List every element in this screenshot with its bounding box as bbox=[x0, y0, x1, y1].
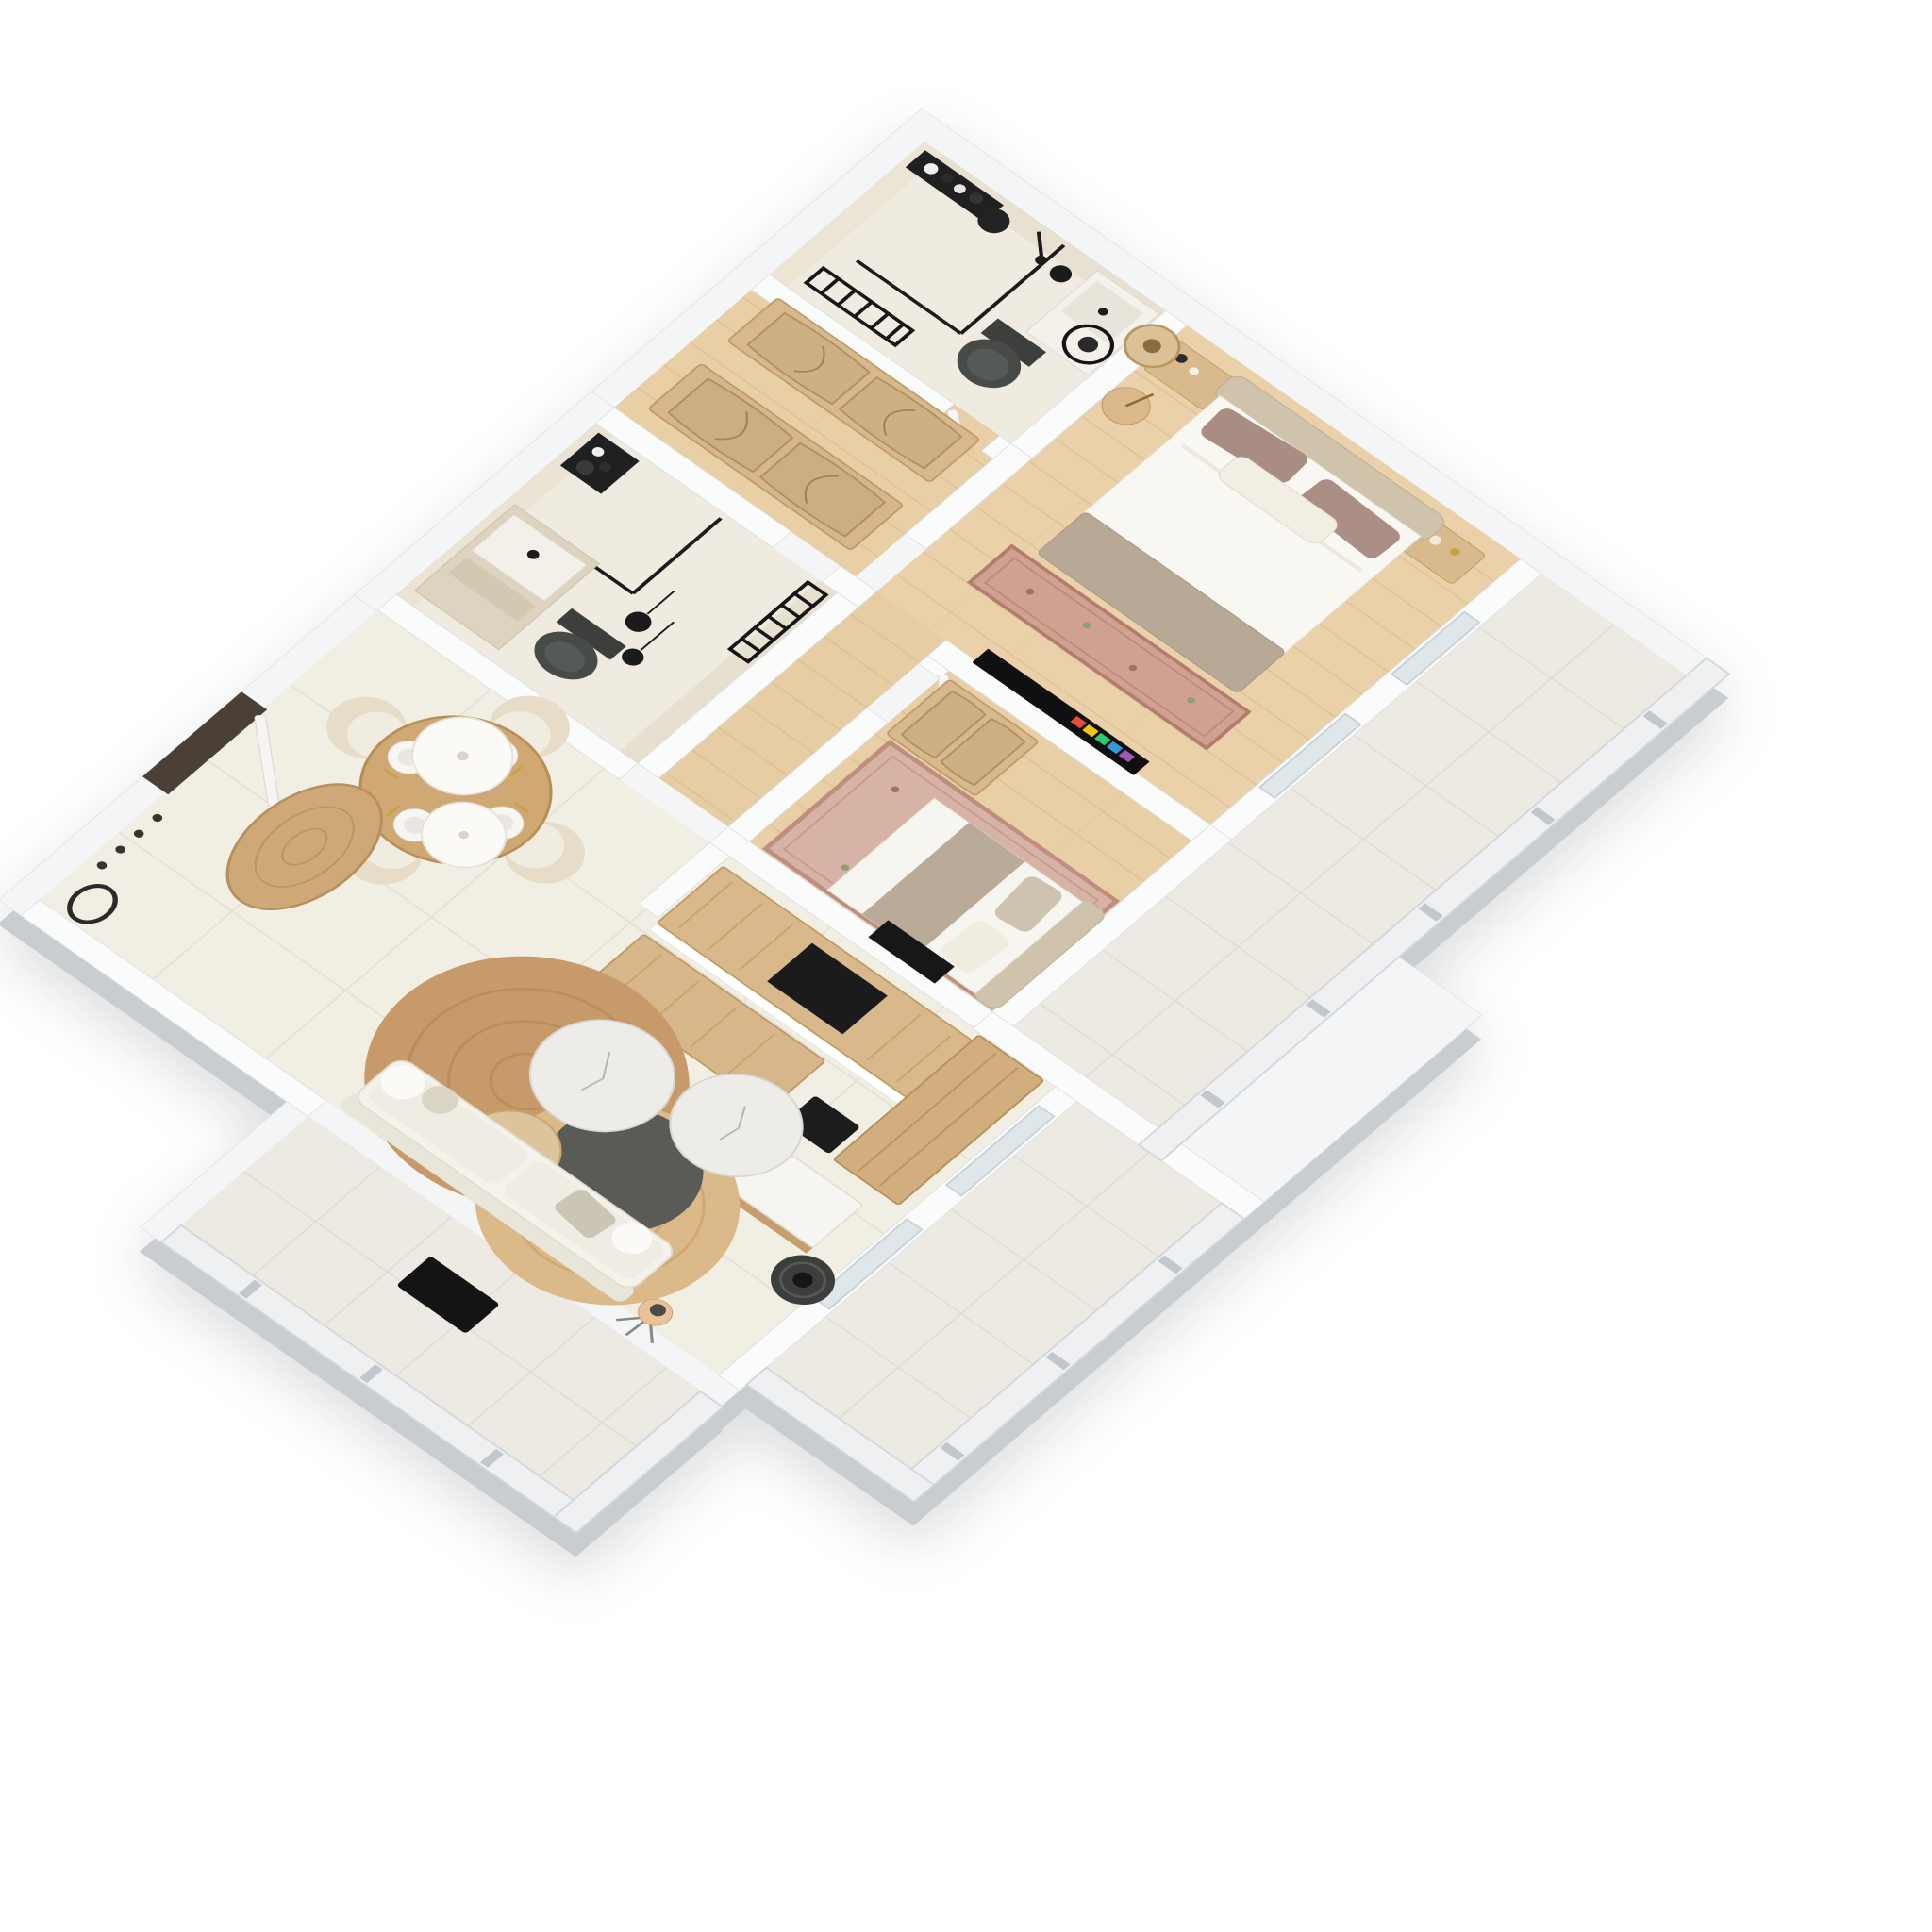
floorplan-svg bbox=[0, 0, 1932, 1932]
floorplan-render bbox=[0, 0, 1932, 1932]
